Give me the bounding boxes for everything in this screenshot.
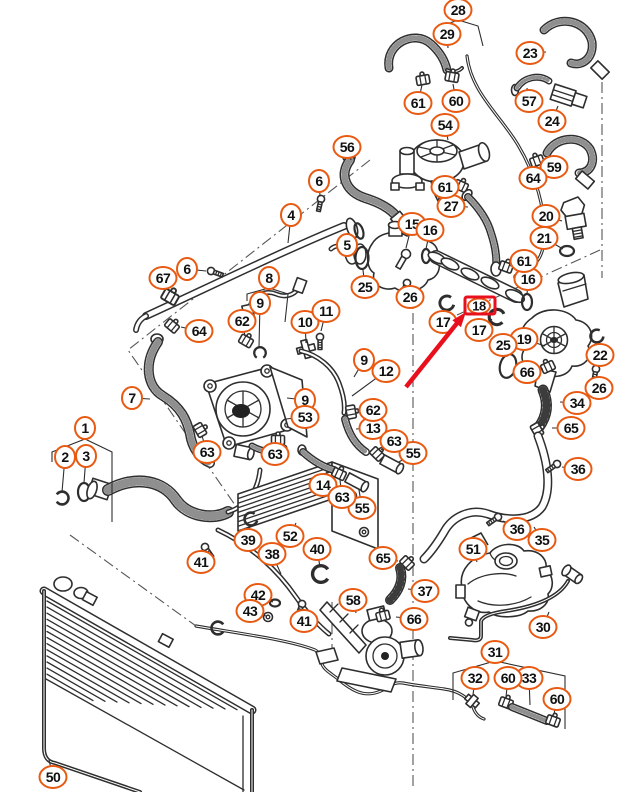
pump-outlet <box>400 639 424 658</box>
callout-63[interactable]: 63 <box>381 430 408 452</box>
callout-label-56: 56 <box>340 139 355 155</box>
callout-29[interactable]: 29 <box>434 23 461 45</box>
callout-label-28: 28 <box>451 2 466 18</box>
highlight-arrow-shaft <box>406 322 458 387</box>
callout-17[interactable]: 17 <box>466 319 493 341</box>
callout-23[interactable]: 23 <box>517 42 544 64</box>
callout-label-10: 10 <box>298 314 313 330</box>
callout-9[interactable]: 9 <box>354 349 374 371</box>
temperature-sensor <box>559 196 590 256</box>
callout-62[interactable]: 62 <box>360 399 387 421</box>
callout-label-34: 34 <box>570 395 585 411</box>
bolt-11 <box>316 333 323 349</box>
callout-label-43: 43 <box>243 603 258 619</box>
callout-64[interactable]: 64 <box>520 167 547 189</box>
callout-31[interactable]: 31 <box>482 641 509 663</box>
callout-label-29: 29 <box>440 26 455 42</box>
callout-label-32: 32 <box>468 670 483 686</box>
tank-fitting <box>462 607 479 628</box>
callout-66[interactable]: 66 <box>401 608 428 630</box>
callout-18[interactable]: 18 <box>468 298 490 313</box>
callout-label-1: 1 <box>81 420 89 436</box>
callout-11[interactable]: 11 <box>313 300 340 322</box>
callout-5[interactable]: 5 <box>337 234 357 256</box>
callout-54[interactable]: 54 <box>432 114 459 136</box>
callout-label-36: 36 <box>571 461 586 477</box>
retaining-clip <box>57 492 69 505</box>
callout-32[interactable]: 32 <box>462 667 489 689</box>
callout-6[interactable]: 6 <box>177 258 197 280</box>
callout-label-5: 5 <box>343 237 351 253</box>
callout-8[interactable]: 8 <box>259 267 279 289</box>
callout-label-23: 23 <box>523 45 538 61</box>
callout-label-39: 39 <box>241 532 256 548</box>
callout-label-12: 12 <box>379 363 394 379</box>
callout-label-62: 62 <box>366 402 381 418</box>
callout-label-4: 4 <box>287 207 295 223</box>
callout-label-9: 9 <box>360 352 368 368</box>
callout-4[interactable]: 4 <box>281 204 301 226</box>
callout-label-59: 59 <box>547 159 562 175</box>
callout-1[interactable]: 1 <box>75 417 95 439</box>
callout-61[interactable]: 61 <box>511 250 538 272</box>
ring-9 <box>254 347 266 358</box>
callout-34[interactable]: 34 <box>564 392 591 414</box>
callout-label-53: 53 <box>298 409 313 425</box>
callout-label-19: 19 <box>517 331 532 347</box>
callout-label-36: 36 <box>510 521 525 537</box>
callout-60[interactable]: 60 <box>443 90 470 112</box>
callout-label-66: 66 <box>407 611 422 627</box>
clamp-63 <box>193 420 210 438</box>
callout-label-17: 17 <box>472 322 487 338</box>
callout-label-61: 61 <box>517 253 532 269</box>
callout-35[interactable]: 35 <box>529 529 556 551</box>
callout-label-51: 51 <box>466 541 481 557</box>
callout-label-62: 62 <box>235 313 250 329</box>
callout-41[interactable]: 41 <box>291 610 318 632</box>
callout-label-31: 31 <box>488 644 503 660</box>
callout-label-26: 26 <box>592 380 607 396</box>
callout-20[interactable]: 20 <box>533 205 560 227</box>
callout-52[interactable]: 52 <box>277 525 304 547</box>
callout-label-66: 66 <box>520 364 535 380</box>
callout-label-9: 9 <box>256 295 264 311</box>
callout-label-21: 21 <box>537 230 552 246</box>
callout-label-58: 58 <box>346 592 361 608</box>
callout-label-63: 63 <box>335 489 350 505</box>
callout-26[interactable]: 26 <box>397 286 424 308</box>
callout-label-61: 61 <box>438 179 453 195</box>
callout-label-55: 55 <box>355 500 370 516</box>
lower-hose-assembly <box>57 470 260 516</box>
callout-label-33: 33 <box>522 670 537 686</box>
callout-6[interactable]: 6 <box>309 170 329 192</box>
callout-36[interactable]: 36 <box>504 518 531 540</box>
callout-label-57: 57 <box>522 93 537 109</box>
callout-label-64: 64 <box>192 323 207 339</box>
clamp-61 <box>415 71 430 86</box>
callout-67[interactable]: 67 <box>150 267 177 289</box>
callout-label-41: 41 <box>194 554 209 570</box>
callout-label-63: 63 <box>200 444 215 460</box>
callout-label-2: 2 <box>61 449 69 465</box>
callout-label-64: 64 <box>526 170 541 186</box>
callout-9[interactable]: 9 <box>250 292 270 314</box>
callout-label-3: 3 <box>82 448 90 464</box>
callout-label-24: 24 <box>545 113 560 129</box>
callout-26[interactable]: 26 <box>586 377 613 399</box>
diagram-page: 1234566789991011121314151616171718192021… <box>0 0 629 792</box>
callout-label-41: 41 <box>297 613 312 629</box>
callout-label-38: 38 <box>265 546 280 562</box>
callout-label-26: 26 <box>403 289 418 305</box>
callout-label-60: 60 <box>449 93 464 109</box>
callout-label-6: 6 <box>315 173 323 189</box>
callout-57[interactable]: 57 <box>516 90 543 112</box>
callout-21[interactable]: 21 <box>531 227 558 249</box>
callout-label-50: 50 <box>46 769 61 785</box>
callout-37[interactable]: 37 <box>412 580 439 602</box>
callout-38[interactable]: 38 <box>259 543 286 565</box>
callout-label-16: 16 <box>423 222 438 238</box>
callout-label-60: 60 <box>550 691 565 707</box>
callout-label-14: 14 <box>316 477 331 493</box>
callout-22[interactable]: 22 <box>587 344 614 366</box>
callout-12[interactable]: 12 <box>373 360 400 382</box>
callout-16[interactable]: 16 <box>417 219 444 241</box>
callout-2[interactable]: 2 <box>55 446 75 468</box>
callout-label-35: 35 <box>535 532 550 548</box>
callout-63[interactable]: 63 <box>329 486 356 508</box>
callout-label-6: 6 <box>183 261 191 277</box>
callout-label-22: 22 <box>593 347 608 363</box>
callout-label-18: 18 <box>472 298 486 313</box>
callout-60[interactable]: 60 <box>495 667 522 689</box>
callout-50[interactable]: 50 <box>40 766 67 788</box>
callout-label-27: 27 <box>444 198 459 214</box>
callout-63[interactable]: 63 <box>194 441 221 463</box>
callout-63[interactable]: 63 <box>262 443 289 465</box>
callout-66[interactable]: 66 <box>514 361 541 383</box>
bolt-6 <box>206 266 224 278</box>
callout-label-17: 17 <box>436 314 451 330</box>
callout-62[interactable]: 62 <box>229 310 256 332</box>
callout-label-65: 65 <box>376 550 391 566</box>
callout-65[interactable]: 65 <box>558 417 585 439</box>
callout-28[interactable]: 28 <box>445 0 472 21</box>
callout-label-8: 8 <box>265 270 273 286</box>
callout-53[interactable]: 53 <box>292 406 319 428</box>
ring-40 <box>313 566 328 583</box>
callout-label-37: 37 <box>418 583 433 599</box>
callout-39[interactable]: 39 <box>235 529 262 551</box>
callout-25[interactable]: 25 <box>352 276 379 298</box>
callout-51[interactable]: 51 <box>460 538 487 560</box>
callout-3[interactable]: 3 <box>76 445 96 467</box>
callout-25[interactable]: 25 <box>490 334 517 356</box>
callout-label-67: 67 <box>156 270 171 286</box>
callout-label-52: 52 <box>283 528 298 544</box>
callout-label-16: 16 <box>521 271 536 287</box>
callout-40[interactable]: 40 <box>304 538 331 560</box>
callout-61[interactable]: 61 <box>432 176 459 198</box>
clamp-64 <box>164 316 182 334</box>
callout-24[interactable]: 24 <box>539 110 566 132</box>
bolt-6 <box>315 195 325 212</box>
callout-56[interactable]: 56 <box>334 136 361 158</box>
callout-label-30: 30 <box>536 619 551 635</box>
callout-label-40: 40 <box>310 541 325 557</box>
callout-43[interactable]: 43 <box>237 600 264 622</box>
callout-61[interactable]: 61 <box>405 92 432 114</box>
callout-7[interactable]: 7 <box>122 387 142 409</box>
callout-label-63: 63 <box>387 433 402 449</box>
callout-60[interactable]: 60 <box>544 688 571 710</box>
pipe-30-fitting <box>560 563 584 585</box>
callout-64[interactable]: 64 <box>186 320 213 342</box>
radiator <box>44 577 252 792</box>
callout-label-25: 25 <box>496 337 511 353</box>
callout-label-63: 63 <box>268 446 283 462</box>
callout-label-55: 55 <box>406 445 421 461</box>
valve-24 <box>550 84 587 110</box>
parts-diagram: 1234566789991011121314151616171718192021… <box>0 0 629 792</box>
callout-label-60: 60 <box>501 670 516 686</box>
callout-label-20: 20 <box>539 208 554 224</box>
callout-label-25: 25 <box>358 279 373 295</box>
callout-36[interactable]: 36 <box>565 458 592 480</box>
callout-label-11: 11 <box>319 303 334 319</box>
callout-label-61: 61 <box>411 95 426 111</box>
callout-label-54: 54 <box>438 117 453 133</box>
callout-label-7: 7 <box>128 390 136 406</box>
callout-65[interactable]: 65 <box>370 547 397 569</box>
fitting-23 <box>591 61 609 79</box>
callout-41[interactable]: 41 <box>188 551 215 573</box>
clamp-62 <box>238 331 256 348</box>
callout-30[interactable]: 30 <box>530 616 557 638</box>
callout-58[interactable]: 58 <box>340 589 367 611</box>
callout-label-13: 13 <box>366 420 381 436</box>
callout-label-65: 65 <box>564 420 579 436</box>
